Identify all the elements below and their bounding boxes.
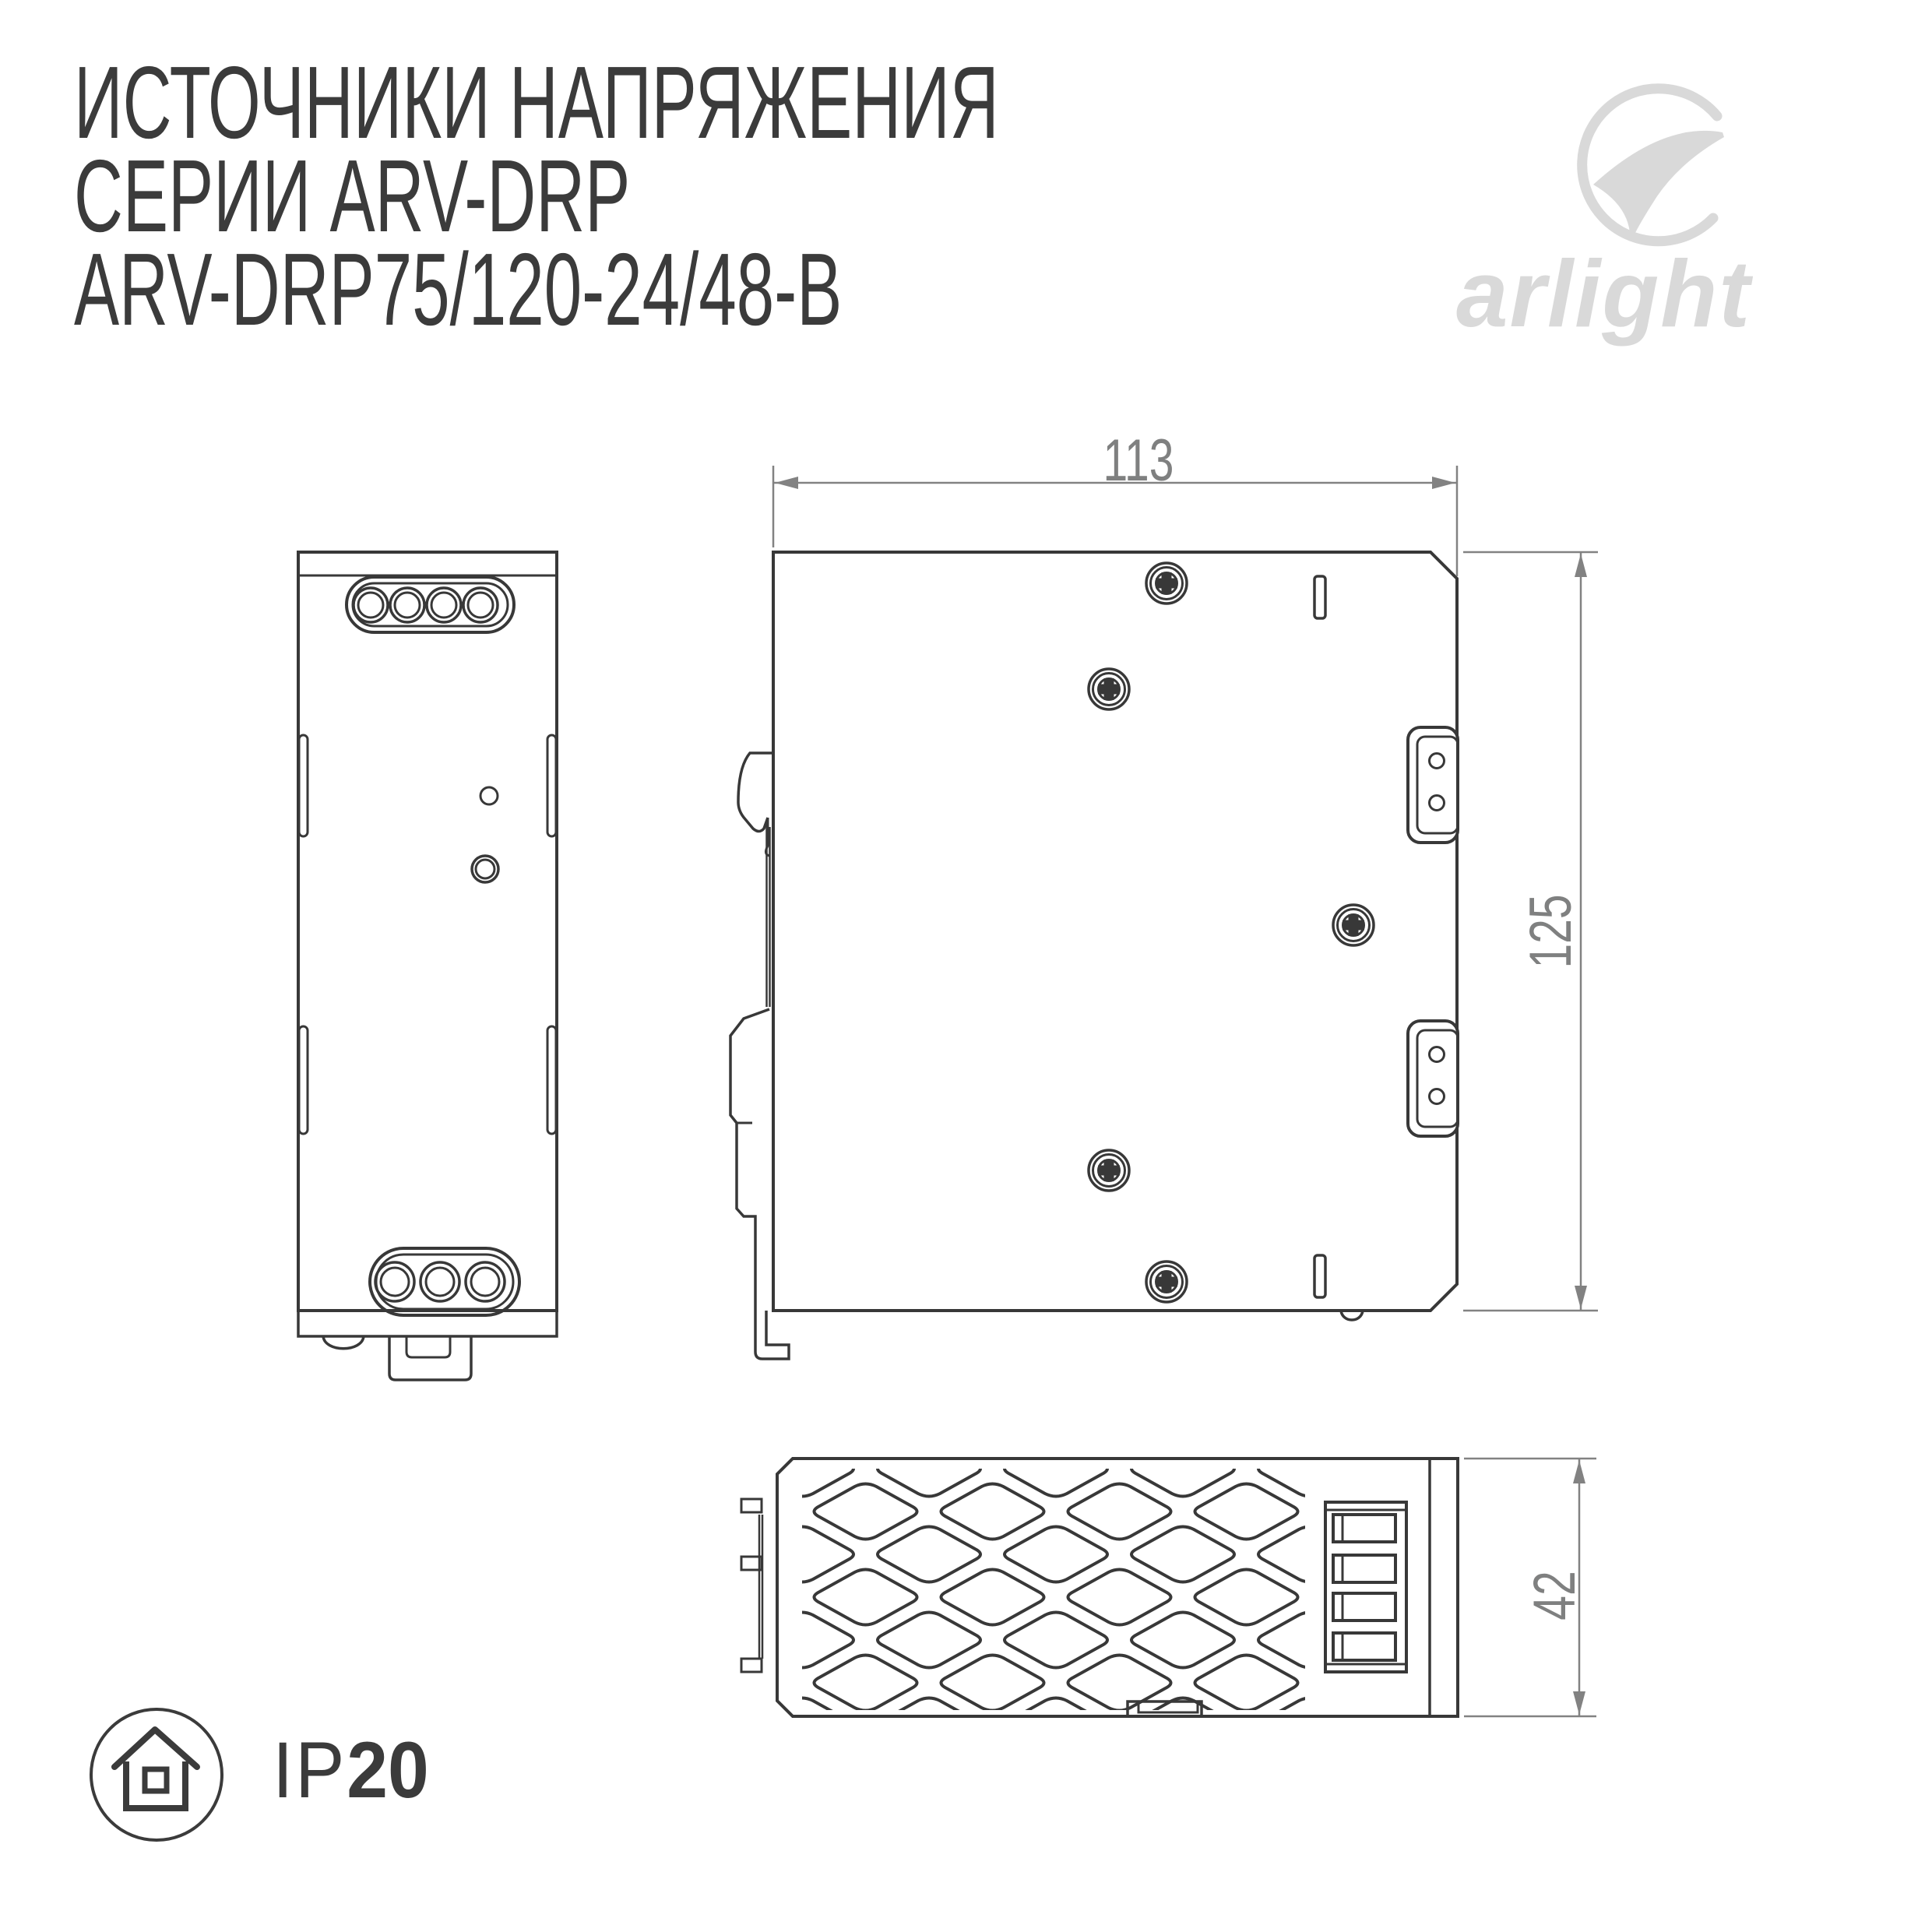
side-view: [730, 552, 1458, 1359]
ip-rating-value: 20: [347, 1726, 429, 1814]
front-view: [298, 552, 557, 1380]
vent-slot: [1314, 1255, 1325, 1297]
ip-rating-prefix: IP: [273, 1726, 347, 1814]
screw-icon: [1146, 1262, 1187, 1302]
din-plate-edge: [741, 1499, 762, 1672]
screw-icon: [1089, 1150, 1129, 1191]
front-body: [298, 552, 557, 1311]
trimmer-potentiometer: [472, 856, 498, 882]
page-title-line3: ARV-DRP75/120-24/48-B: [74, 238, 842, 341]
dimension-label-depth: 42: [1520, 1508, 1590, 1684]
dimension-label-height: 125: [1516, 844, 1586, 1019]
bottom-view: [741, 1459, 1458, 1716]
connector-tab: [1408, 727, 1458, 843]
din-rail-mount: [730, 753, 789, 1359]
output-terminal-block: [370, 1248, 519, 1315]
terminal-block-bottom: [1325, 1502, 1406, 1672]
screw-icon: [1089, 669, 1129, 709]
connector-tab: [1408, 1021, 1458, 1136]
indoor-house-icon: [91, 1709, 222, 1840]
datasheet-page: ИСТОЧНИКИ НАПРЯЖЕНИЯ СЕРИИ ARV-DRP ARV-D…: [0, 0, 1932, 1932]
vent-slot: [1314, 576, 1325, 618]
input-terminal-block: [347, 577, 514, 632]
din-clip-front: [389, 1336, 471, 1380]
arlight-logo-text: arlight: [1456, 246, 1751, 341]
screw-icon: [1146, 563, 1187, 604]
arlight-logo-icon: [1582, 89, 1724, 241]
ip-rating-badge: IP20: [273, 1730, 429, 1810]
screw-icon: [1333, 905, 1374, 945]
edge-notches: [299, 735, 556, 1134]
led-indicator: [480, 787, 498, 804]
dimension-label-width: 113: [1051, 426, 1226, 496]
ventilation-mesh: [802, 1469, 1305, 1710]
